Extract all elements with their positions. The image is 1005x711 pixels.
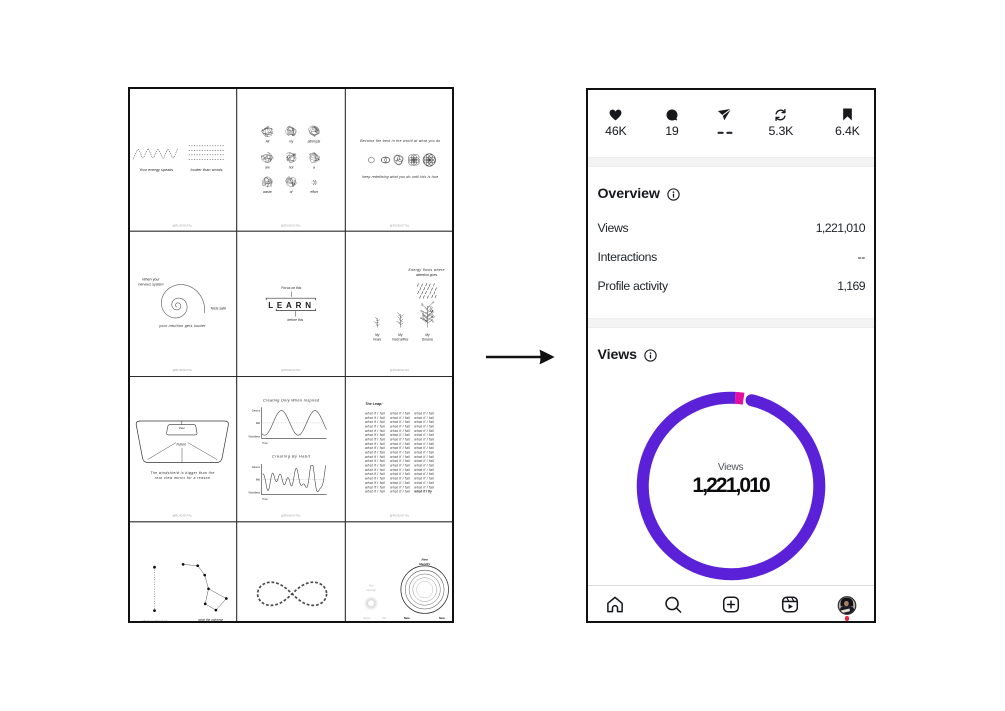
svg-text:Mid: Mid xyxy=(256,421,261,425)
svg-text:a: a xyxy=(313,166,315,170)
svg-text:nervous system: nervous system xyxy=(138,283,163,287)
svg-text:Same: Same xyxy=(363,616,371,620)
svg-text:Creating By Habit: Creating By Habit xyxy=(272,454,311,458)
svg-text:Dreams: Dreams xyxy=(422,337,434,341)
svg-text:My: My xyxy=(375,333,380,337)
svg-text:what if I fly: what if I fly xyxy=(414,490,432,494)
svg-text:Focus on this: Focus on this xyxy=(281,286,301,290)
svg-text:@RUIDIGITAL: @RUIDIGITAL xyxy=(281,514,301,518)
svg-text:New: New xyxy=(404,616,411,620)
svg-text:All: All xyxy=(265,139,270,143)
svg-text:Identity: Identity xyxy=(419,562,430,566)
svg-text:Genius: Genius xyxy=(252,409,261,413)
svg-text:When your: When your xyxy=(142,278,160,282)
svg-text:Mid: Mid xyxy=(256,478,261,482)
svg-text:my: my xyxy=(289,139,294,143)
svg-text:Become the best in the world a: Become the best in the world at what you… xyxy=(360,139,440,143)
svg-text:@RUIDIGITAL: @RUIDIGITAL xyxy=(390,368,410,372)
svg-text:before this: before this xyxy=(287,318,303,322)
svg-text:your intuition gets louder: your intuition gets louder xyxy=(158,324,206,328)
svg-text:The windshield is bigger than: The windshield is bigger than the xyxy=(150,471,214,475)
svg-text:New: New xyxy=(422,557,429,561)
svg-text:@RUIDIGITAL: @RUIDIGITAL xyxy=(172,368,192,372)
svg-text:LEARN: LEARN xyxy=(268,301,315,310)
svg-text:effort: effort xyxy=(310,190,319,194)
svg-text:Genius: Genius xyxy=(252,465,261,469)
svg-text:waste: waste xyxy=(263,190,272,194)
svg-text:My: My xyxy=(398,333,403,337)
svg-text:Energy flows where: Energy flows where xyxy=(409,268,445,272)
svg-text:Fears: Fears xyxy=(373,337,382,341)
svg-text:Old: Old xyxy=(382,616,387,620)
svg-text:Insecurities: Insecurities xyxy=(392,337,409,341)
svg-text:Future: Future xyxy=(177,443,187,447)
svg-text:are: are xyxy=(265,166,270,170)
svg-text:attempts: attempts xyxy=(308,139,321,143)
svg-text:keep redefining what you do un: keep redefining what you do until this i… xyxy=(362,175,438,179)
svg-text:The Leap:: The Leap: xyxy=(365,402,383,406)
svg-text::)): :)) xyxy=(311,180,317,186)
svg-text:feels safe: feels safe xyxy=(211,307,226,311)
svg-text:Worthless: Worthless xyxy=(248,434,260,438)
svg-text:Worthless: Worthless xyxy=(248,491,260,495)
svg-text:Time: Time xyxy=(262,441,268,445)
svg-text:@RUIDIGITAL: @RUIDIGITAL xyxy=(390,514,410,518)
svg-text:Past: Past xyxy=(179,426,185,430)
svg-text:louder than words.: louder than words. xyxy=(191,168,224,172)
svg-text:Creating Only When Inspired: Creating Only When Inspired xyxy=(263,399,320,403)
svg-text:My: My xyxy=(425,333,430,337)
svg-text:attention goes: attention goes xyxy=(416,273,438,277)
svg-text:New: New xyxy=(439,616,446,620)
svg-text:Your energy speaks: Your energy speaks xyxy=(139,168,173,172)
svg-text:@RUIDIGITAL: @RUIDIGITAL xyxy=(172,514,192,518)
svg-text:rear view mirror for a reason: rear view mirror for a reason xyxy=(155,476,210,480)
svg-text:@RUIDIGITAL: @RUIDIGITAL xyxy=(172,223,192,227)
svg-text:Identity: Identity xyxy=(366,588,376,592)
svg-text:Old: Old xyxy=(369,584,374,588)
svg-text:@RUIDIGITAL: @RUIDIGITAL xyxy=(281,223,301,227)
svg-text:Time: Time xyxy=(262,497,268,501)
svg-text:@RUIDIGITAL: @RUIDIGITAL xyxy=(390,223,410,227)
svg-text:what if I fail: what if I fail xyxy=(390,490,410,494)
svg-text:what if I fail: what if I fail xyxy=(365,490,385,494)
svg-text:@RUIDIGITAL: @RUIDIGITAL xyxy=(281,368,301,372)
